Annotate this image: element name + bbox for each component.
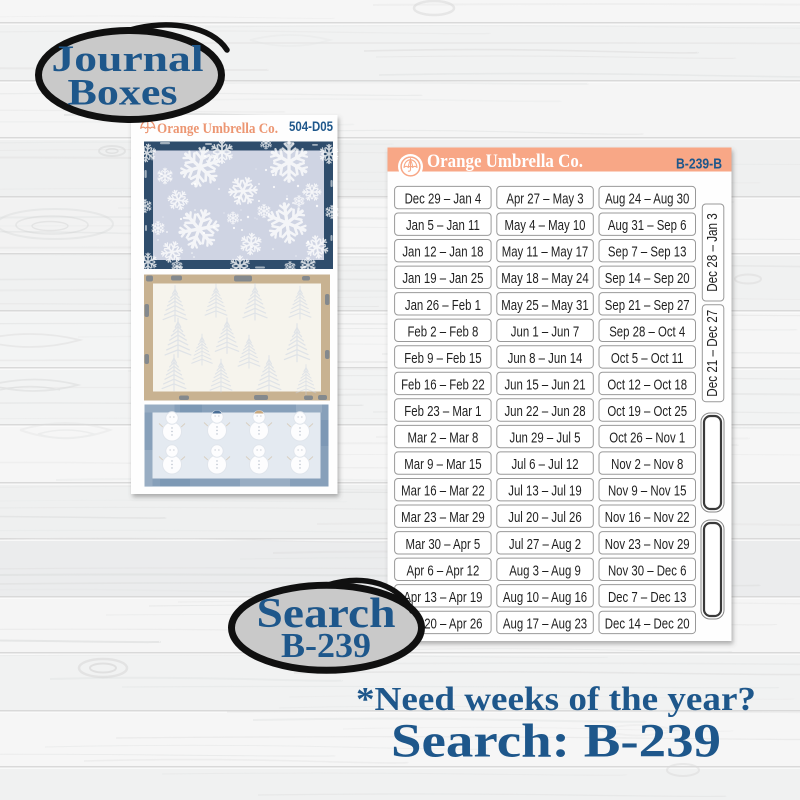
svg-text:Dec 14 – Dec 20: Dec 14 – Dec 20 [605,615,690,632]
svg-text:Mar 16 – Mar 22: Mar 16 – Mar 22 [401,482,485,499]
svg-text:May 25 – May 31: May 25 – May 31 [501,296,588,313]
svg-text:Oct 19 – Oct 25: Oct 19 – Oct 25 [607,402,687,419]
svg-text:Boxes: Boxes [68,73,178,114]
svg-text:Aug 10 – Aug 16: Aug 10 – Aug 16 [503,588,587,605]
svg-text:Aug 24 – Aug 30: Aug 24 – Aug 30 [605,190,689,207]
svg-text:Sep 21 – Sep 27: Sep 21 – Sep 27 [605,296,690,313]
svg-text:Apr 27 – May 3: Apr 27 – May 3 [506,190,583,207]
svg-text:Feb 16 – Feb 22: Feb 16 – Feb 22 [401,376,485,393]
svg-text:Mar 30 – Apr 5: Mar 30 – Apr 5 [406,535,481,552]
svg-text:Jun 8 – Jun 14: Jun 8 – Jun 14 [508,349,583,366]
svg-text:Orange Umbrella Co.: Orange Umbrella Co. [427,151,583,172]
svg-text:Jan 5 – Jan 11: Jan 5 – Jan 11 [406,217,480,234]
svg-text:May 18 – May 24: May 18 – May 24 [501,270,589,287]
svg-text:Sep 28 – Oct 4: Sep 28 – Oct 4 [609,323,686,340]
svg-text:Aug 3 – Aug 9: Aug 3 – Aug 9 [509,562,581,579]
svg-text:Dec 28 – Jan 3: Dec 28 – Jan 3 [704,213,721,292]
svg-text:Jun 1 – Jun 7: Jun 1 – Jun 7 [511,323,579,340]
svg-text:Dec 29 – Jan 4: Dec 29 – Jan 4 [405,190,482,207]
svg-text:Jan 19 – Jan 25: Jan 19 – Jan 25 [402,270,483,287]
svg-text:Nov 23 – Nov 29: Nov 23 – Nov 29 [605,535,690,552]
svg-text:Jun 15 – Jun 21: Jun 15 – Jun 21 [504,376,585,393]
svg-text:Search: B-239: Search: B-239 [391,715,721,768]
svg-text:Jul 6 – Jul 12: Jul 6 – Jul 12 [511,456,578,473]
svg-text:Dec 7 – Dec 13: Dec 7 – Dec 13 [608,588,687,605]
svg-text:Orange Umbrella Co.: Orange Umbrella Co. [157,121,278,137]
svg-text:Aug 17 – Aug 23: Aug 17 – Aug 23 [503,615,587,632]
svg-text:Feb 2 – Feb 8: Feb 2 – Feb 8 [407,323,478,340]
svg-text:Mar 23 – Mar 29: Mar 23 – Mar 29 [401,509,485,526]
svg-text:Jul 27 – Aug 2: Jul 27 – Aug 2 [509,535,581,552]
svg-text:Oct 12 – Oct 18: Oct 12 – Oct 18 [607,376,687,393]
svg-text:Nov 30 – Dec 6: Nov 30 – Dec 6 [608,562,687,579]
svg-text:May 11 – May 17: May 11 – May 17 [502,243,589,260]
svg-text:Jul 20 – Jul 26: Jul 20 – Jul 26 [508,509,581,526]
svg-text:B-239-B: B-239-B [676,157,722,173]
svg-text:Nov 2 – Nov 8: Nov 2 – Nov 8 [611,456,683,473]
svg-text:Apr 6 – Apr 12: Apr 6 – Apr 12 [406,562,479,579]
svg-text:Nov 16 – Nov 22: Nov 16 – Nov 22 [605,509,690,526]
svg-text:Apr 13 – Apr 19: Apr 13 – Apr 19 [403,588,482,605]
svg-text:Oct 26 – Nov 1: Oct 26 – Nov 1 [609,429,685,446]
svg-text:Feb 9 – Feb 15: Feb 9 – Feb 15 [404,349,481,366]
svg-text:Mar 2 – Mar 8: Mar 2 – Mar 8 [407,429,478,446]
svg-text:Aug 31 – Sep 6: Aug 31 – Sep 6 [608,217,687,234]
svg-text:Feb 23 – Mar 1: Feb 23 – Mar 1 [404,402,481,419]
svg-text:504-D05: 504-D05 [289,119,333,134]
svg-text:Jun 29 – Jul 5: Jun 29 – Jul 5 [510,429,581,446]
svg-text:Jan 26 – Feb 1: Jan 26 – Feb 1 [405,296,481,313]
svg-text:Jan 12 – Jan 18: Jan 12 – Jan 18 [402,243,483,260]
svg-text:Nov 9 – Nov 15: Nov 9 – Nov 15 [608,482,687,499]
svg-text:Dec 21 – Dec 27: Dec 21 – Dec 27 [704,310,721,397]
svg-text:Sep 7 – Sep 13: Sep 7 – Sep 13 [608,243,687,260]
svg-text:*Need weeks of the year?: *Need weeks of the year? [356,681,756,718]
svg-text:Oct 5 – Oct 11: Oct 5 – Oct 11 [611,349,684,366]
svg-text:Jul 13 – Jul 19: Jul 13 – Jul 19 [508,482,581,499]
svg-text:May 4 – May 10: May 4 – May 10 [504,217,585,234]
svg-text:Sep 14 – Sep 20: Sep 14 – Sep 20 [605,270,690,287]
svg-text:Mar 9 – Mar 15: Mar 9 – Mar 15 [404,456,481,473]
svg-text:B-239: B-239 [281,626,371,665]
svg-text:Jun 22 – Jun 28: Jun 22 – Jun 28 [504,402,585,419]
